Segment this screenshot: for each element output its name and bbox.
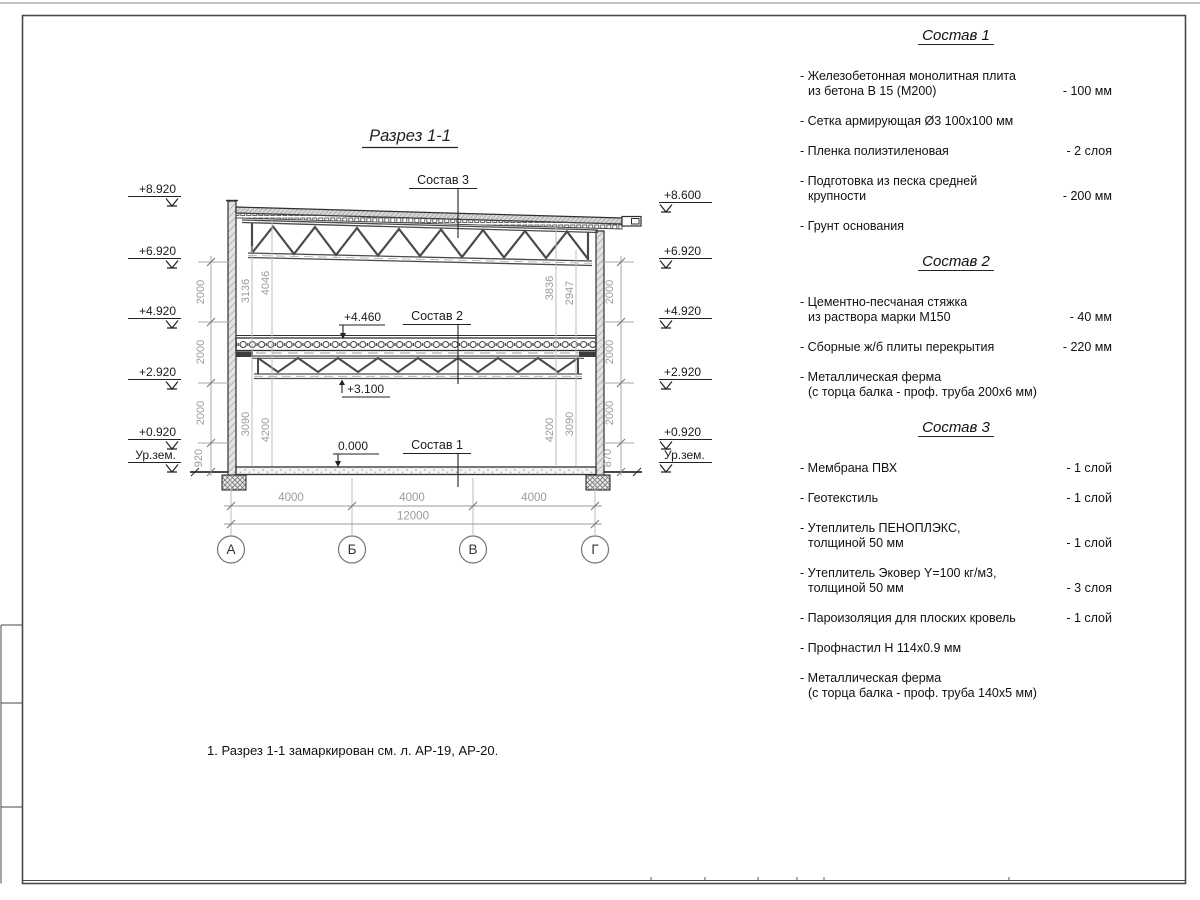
dim-text: 2000 <box>195 280 207 304</box>
elevation-text: +6.920 <box>664 244 701 258</box>
material-item: - Пароизоляция для плоских кровель- 1 сл… <box>800 611 1112 626</box>
elevation-text: +2.920 <box>664 365 701 379</box>
dim-total-text: 12000 <box>397 511 429 523</box>
dim-text: 3090 <box>240 412 252 436</box>
material-item-line: - Цементно-песчаная стяжка <box>800 295 967 310</box>
material-item-line: - Утеплитель Эковер Y=100 кг/м3, <box>800 566 996 581</box>
material-item-line: толщиной 50 мм <box>800 581 996 596</box>
dim-text: 4200 <box>544 418 556 442</box>
material-item: - Металлическая ферма(с торца балка - пр… <box>800 370 1112 400</box>
level-marks: +4.460 +3.100 0.000 <box>333 310 390 467</box>
material-item-line: крупности <box>800 189 977 204</box>
material-item-lines: - Пленка полиэтиленовая <box>800 144 949 159</box>
material-item-value: - 40 мм <box>1062 310 1112 325</box>
materials-panel: Состав 1- Железобетонная монолитная плит… <box>800 28 1112 716</box>
material-item-lines: - Профнастил Н 114х0.9 мм <box>800 641 961 656</box>
axis-letter: Г <box>591 542 599 557</box>
material-section-title: Состав 3 <box>918 420 994 437</box>
elevation-text: +0.920 <box>664 425 701 439</box>
material-item-line: - Железобетонная монолитная плита <box>800 69 1016 84</box>
dim-text: 3136 <box>240 279 252 303</box>
axis-bubbles: А Б В Г <box>218 536 609 563</box>
elevation-text: +4.920 <box>139 304 176 318</box>
elevation-text: Ур.зем. <box>135 448 176 462</box>
material-item: - Подготовка из песка среднейкрупности- … <box>800 174 1112 204</box>
material-item-line: толщиной 50 мм <box>800 536 960 551</box>
sostav1-label: Состав 1 <box>411 438 463 452</box>
material-item-lines: - Цементно-песчаная стяжкаиз раствора ма… <box>800 295 967 325</box>
material-item-line: - Сетка армирующая Ø3 100х100 мм <box>800 114 1013 129</box>
material-item-lines: - Геотекстиль <box>800 491 878 506</box>
material-section-title: Состав 1 <box>918 28 994 45</box>
material-item: - Мембрана ПВХ- 1 слой <box>800 461 1112 476</box>
material-item-line: из бетона В 15 (М200) <box>800 84 1016 99</box>
material-item-value: - 1 слой <box>1058 536 1112 551</box>
sostav3-label: Состав 3 <box>417 173 469 187</box>
material-item-lines: - Металлическая ферма(с торца балка - пр… <box>800 370 1037 400</box>
elevation-mark: +4.920 <box>659 304 712 328</box>
material-item-value: - 220 мм <box>1055 340 1112 355</box>
elevation-mark: +8.920 <box>128 182 181 206</box>
material-item: - Металлическая ферма(с торца балка - пр… <box>800 671 1112 701</box>
elevations-right: +8.600 +6.920 +4.920 +2.920 +0.920 Ур.зе… <box>659 188 712 472</box>
elevation-mark: +2.920 <box>659 365 712 389</box>
dim-text: 2000 <box>604 401 616 425</box>
material-item-lines: - Грунт основания <box>800 219 904 234</box>
elevation-text: Ур.зем. <box>664 448 705 462</box>
dim-text: 2000 <box>604 280 616 304</box>
material-item-line: (с торца балка - проф. труба 200х6 мм) <box>800 385 1037 400</box>
elevation-text: +6.920 <box>139 244 176 258</box>
dim-text: 2000 <box>604 340 616 364</box>
material-item: - Грунт основания <box>800 219 1112 234</box>
material-item-line: (с торца балка - проф. труба 140х5 мм) <box>800 686 1037 701</box>
dim-text: 920 <box>193 449 205 467</box>
elevation-text: +2.920 <box>139 365 176 379</box>
elevation-text: +8.600 <box>664 188 701 202</box>
dim-text: 3090 <box>564 412 576 436</box>
material-item-line: - Сборные ж/б плиты перекрытия <box>800 340 994 355</box>
ground-floor <box>190 467 642 490</box>
material-item-line: - Пароизоляция для плоских кровель <box>800 611 1016 626</box>
dim-text: 4200 <box>260 418 272 442</box>
dim-chain-right: 2000 2000 2000 870 <box>602 256 634 476</box>
material-item-lines: - Утеплитель Эковер Y=100 кг/м3,толщиной… <box>800 566 996 596</box>
dim-chain-left: 2000 2000 2000 920 <box>193 256 230 476</box>
material-item-lines: - Подготовка из песка среднейкрупности <box>800 174 977 204</box>
dim-text: 4000 <box>521 492 547 504</box>
elevation-mark: +4.920 <box>128 304 181 328</box>
material-item: - Сетка армирующая Ø3 100х100 мм <box>800 114 1112 129</box>
dim-text: 2000 <box>195 340 207 364</box>
dim-text: 4000 <box>399 492 425 504</box>
elevations-left: +8.920 +6.920 +4.920 +2.920 +0.920 Ур.зе… <box>128 182 181 472</box>
material-item-line: - Металлическая ферма <box>800 370 1037 385</box>
sheet-note: 1. Разрез 1-1 замаркирован см. л. АР-19,… <box>207 743 498 758</box>
material-item-line: из раствора марки М150 <box>800 310 967 325</box>
material-item-line: - Подготовка из песка средней <box>800 174 977 189</box>
material-item: - Железобетонная монолитная плитаиз бето… <box>800 69 1112 99</box>
material-item-lines: - Мембрана ПВХ <box>800 461 897 476</box>
material-item-lines: - Утеплитель ПЕНОПЛЭКС,толщиной 50 мм <box>800 521 960 551</box>
material-item-lines: - Сборные ж/б плиты перекрытия <box>800 340 994 355</box>
material-item: - Пленка полиэтиленовая- 2 слоя <box>800 144 1112 159</box>
material-item-value: - 200 мм <box>1055 189 1112 204</box>
axis-letter: В <box>468 542 477 557</box>
drawing-sheet: Разрез 1-1 <box>0 0 1200 900</box>
floor-truss <box>252 356 584 379</box>
level-0000: 0.000 <box>338 439 368 453</box>
material-item: - Профнастил Н 114х0.9 мм <box>800 641 1112 656</box>
elevation-mark: +0.920 <box>659 425 712 449</box>
material-item-value: - 100 мм <box>1055 84 1112 99</box>
level-4460: +4.460 <box>344 310 381 324</box>
elevation-mark: +8.600 <box>659 188 712 212</box>
material-item: - Геотекстиль- 1 слой <box>800 491 1112 506</box>
drawing-title: Разрез 1-1 <box>362 127 458 148</box>
material-item-line: - Металлическая ферма <box>800 671 1037 686</box>
elevation-mark: Ур.зем. <box>128 448 181 472</box>
material-item: - Сборные ж/б плиты перекрытия- 220 мм <box>800 340 1112 355</box>
material-item-line: - Пленка полиэтиленовая <box>800 144 949 159</box>
middle-floor <box>236 336 596 358</box>
material-item-line: - Грунт основания <box>800 219 904 234</box>
material-item-lines: - Сетка армирующая Ø3 100х100 мм <box>800 114 1013 129</box>
elevation-text: +8.920 <box>139 182 176 196</box>
axis-letter: А <box>226 542 235 557</box>
dim-text: 2000 <box>195 401 207 425</box>
dim-text: 4000 <box>278 492 304 504</box>
level-3100: +3.100 <box>347 382 384 396</box>
material-section-title: Состав 2 <box>918 254 994 271</box>
material-item-line: - Мембрана ПВХ <box>800 461 897 476</box>
elevation-mark: +6.920 <box>128 244 181 268</box>
material-item: - Цементно-песчаная стяжкаиз раствора ма… <box>800 295 1112 325</box>
elevation-mark: +0.920 <box>128 425 181 449</box>
elevation-text: +0.920 <box>139 425 176 439</box>
dim-text: 870 <box>602 449 614 467</box>
material-item-line: - Геотекстиль <box>800 491 878 506</box>
elevation-mark: +6.920 <box>659 244 712 268</box>
section-title-text: Разрез 1-1 <box>369 127 451 145</box>
dim-text: 3836 <box>544 276 556 300</box>
material-item: - Утеплитель Эковер Y=100 кг/м3,толщиной… <box>800 566 1112 596</box>
material-item-value: - 2 слоя <box>1059 144 1112 159</box>
material-item: - Утеплитель ПЕНОПЛЭКС,толщиной 50 мм- 1… <box>800 521 1112 551</box>
elevation-mark: Ур.зем. <box>659 448 712 472</box>
sostav2-label: Состав 2 <box>411 309 463 323</box>
elevation-mark: +2.920 <box>128 365 181 389</box>
material-item-lines: - Железобетонная монолитная плитаиз бето… <box>800 69 1016 99</box>
material-item-line: - Профнастил Н 114х0.9 мм <box>800 641 961 656</box>
material-item-lines: - Пароизоляция для плоских кровель <box>800 611 1016 626</box>
material-item-lines: - Металлическая ферма(с торца балка - пр… <box>800 671 1037 701</box>
material-item-value: - 1 слой <box>1058 611 1112 626</box>
dims-bottom: 4000 4000 4000 12000 <box>224 478 602 535</box>
material-item-line: - Утеплитель ПЕНОПЛЭКС, <box>800 521 960 536</box>
dim-text: 2947 <box>564 281 576 305</box>
elevation-text: +4.920 <box>664 304 701 318</box>
material-item-value: - 1 слой <box>1058 491 1112 506</box>
material-item-value: - 1 слой <box>1058 461 1112 476</box>
axis-letter: Б <box>348 542 357 557</box>
dim-text: 4046 <box>260 271 272 295</box>
material-item-value: - 3 слоя <box>1059 581 1112 596</box>
